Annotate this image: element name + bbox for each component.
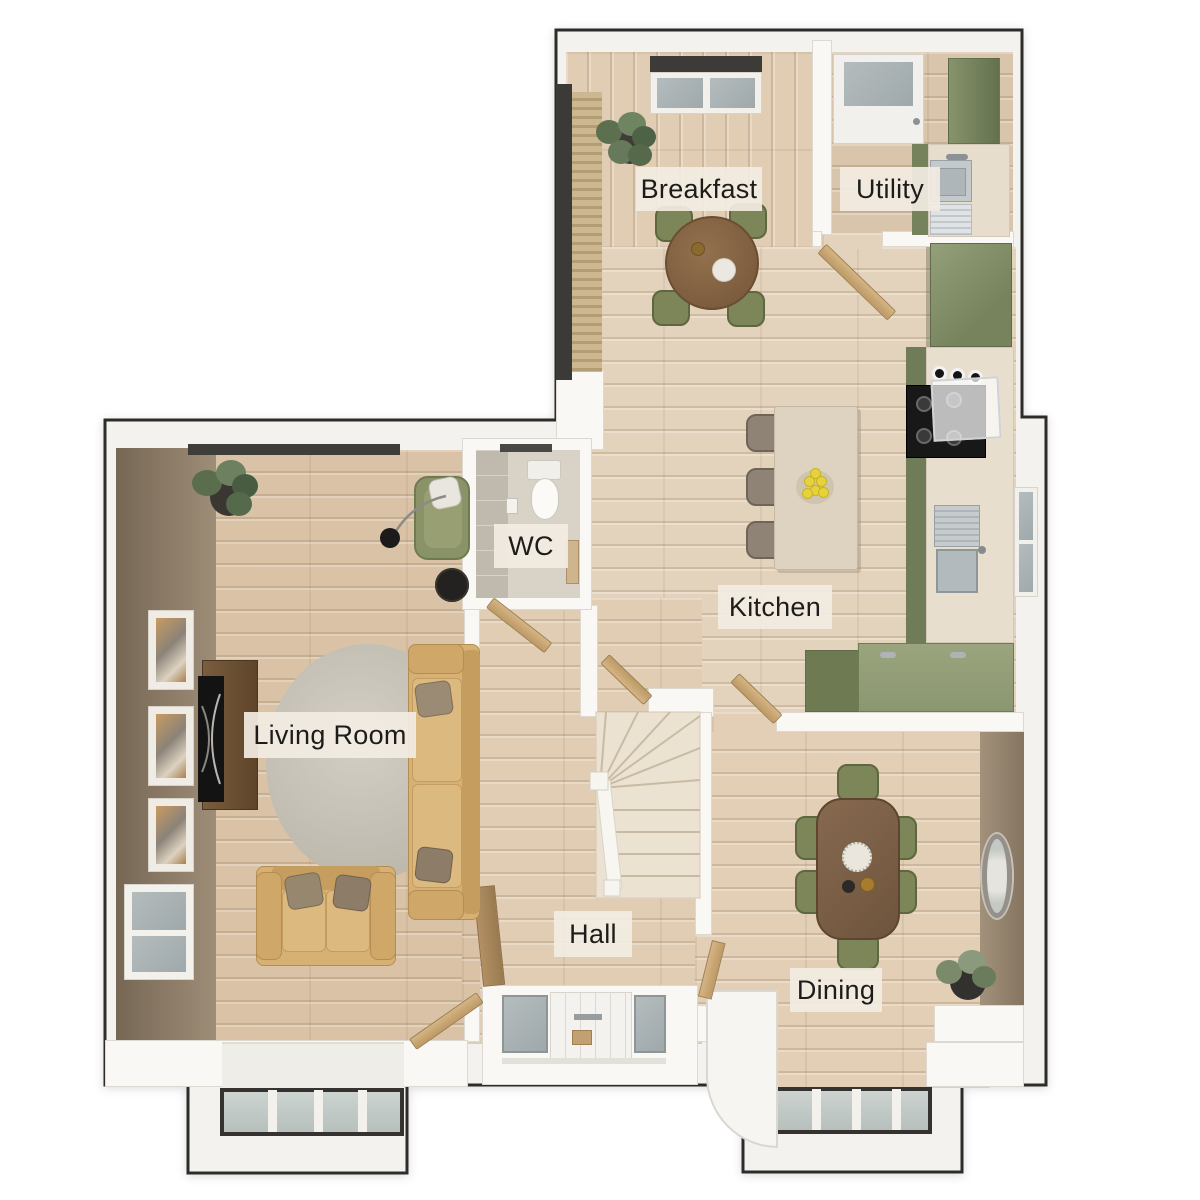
- wall-kitchen-hall: [580, 605, 598, 717]
- room-label-dining: Dining: [790, 968, 882, 1012]
- front-door: [550, 992, 632, 1062]
- floor-plan: Breakfast Utility Kitchen WC Living Room…: [0, 0, 1200, 1200]
- loveseat-pillow: [283, 871, 324, 911]
- living-plant: [192, 460, 258, 520]
- credenza-handle: [950, 652, 966, 658]
- room-label-text: WC: [508, 533, 554, 560]
- breakfast-table: [665, 216, 759, 310]
- breakfast-window-blind: [650, 56, 762, 72]
- room-label-hall: Hall: [554, 911, 632, 957]
- dining-centerpiece-plate: [842, 842, 872, 872]
- window-mullion: [314, 1090, 323, 1132]
- kitchen-sink: [936, 549, 978, 593]
- utility-wall-cabinet: [948, 58, 1000, 144]
- staircase: [588, 708, 704, 902]
- loveseat-pillow: [332, 874, 372, 913]
- dining-plant: [936, 950, 996, 1010]
- room-label-text: Breakfast: [641, 176, 758, 203]
- utility-door-handle: [913, 118, 920, 125]
- wc-window: [500, 444, 552, 452]
- front-door-threshold: [502, 1058, 666, 1064]
- cake-plate: [712, 258, 736, 282]
- living-bay-sill: [222, 1042, 404, 1088]
- lemon: [802, 488, 813, 499]
- window-mullion: [268, 1090, 277, 1132]
- stair-newel: [604, 880, 620, 896]
- sofa-armrest: [408, 644, 464, 674]
- wall-dining-corner: [934, 1005, 1024, 1042]
- window-mullion: [892, 1089, 901, 1130]
- side-table: [435, 568, 469, 602]
- kitchen-larder-cabinet: [930, 243, 1012, 347]
- kitchen-window-pane: [1019, 492, 1033, 540]
- utility-faucet: [946, 154, 968, 160]
- sofa-armrest: [408, 890, 464, 920]
- floor-lamp: [380, 486, 460, 556]
- living-bay-window: [220, 1088, 404, 1136]
- lemon: [810, 468, 821, 479]
- utility-sink-basin: [936, 168, 966, 196]
- toilet-bowl: [531, 478, 559, 520]
- room-label-breakfast: Breakfast: [636, 167, 762, 211]
- loveseat-armrest: [370, 872, 396, 960]
- dining-mirror: [982, 834, 1012, 918]
- breakfast-plant: [596, 112, 658, 174]
- stair-newel: [590, 772, 608, 790]
- table-vase: [691, 242, 705, 256]
- front-door-letterbox: [572, 1030, 592, 1045]
- threshold-utility: [822, 233, 882, 249]
- room-label-text: Utility: [856, 176, 924, 203]
- living-side-window-pane: [132, 936, 186, 972]
- wall-dining-bay-right: [926, 1042, 1024, 1087]
- room-label-text: Kitchen: [729, 594, 821, 621]
- room-label-living-room: Living Room: [244, 712, 416, 758]
- room-label-wc: WC: [494, 524, 568, 568]
- room-label-text: Living Room: [253, 722, 406, 749]
- sofa-backrest: [462, 650, 480, 914]
- toilet-paper-holder: [506, 498, 518, 514]
- sink-drainer: [934, 505, 980, 547]
- living-room-window: [188, 444, 400, 455]
- toilet-cistern: [527, 460, 561, 480]
- window-mullion: [358, 1090, 367, 1132]
- sofa-pillow: [414, 680, 454, 719]
- front-door-sidelight: [634, 995, 666, 1053]
- loveseat-armrest: [256, 872, 282, 960]
- hob-burner: [916, 428, 932, 444]
- dining-bottle: [842, 880, 855, 893]
- kitchen-faucet: [978, 546, 986, 554]
- room-label-utility: Utility: [840, 167, 940, 211]
- credenza-handle: [880, 652, 896, 658]
- window-mullion: [812, 1089, 821, 1130]
- sofa-pillow: [414, 846, 454, 884]
- wall-art-frame: [148, 706, 194, 786]
- wall-segment: [812, 231, 822, 247]
- dining-chair: [837, 764, 879, 802]
- breakfast-window-pane: [657, 78, 703, 108]
- breakfast-side-glazing-frame: [556, 84, 572, 380]
- wall-kitchen-dining: [776, 712, 1024, 732]
- wall-breakfast-utility: [812, 40, 832, 235]
- kitchen-window-pane: [1019, 544, 1033, 592]
- breakfast-window-pane: [710, 78, 755, 108]
- dining-bottle: [860, 877, 875, 892]
- room-label-kitchen: Kitchen: [718, 585, 832, 629]
- window-mullion: [852, 1089, 861, 1130]
- living-side-window-pane: [132, 892, 186, 930]
- wall-art-frame: [148, 798, 194, 872]
- wall-art-frame: [148, 610, 194, 690]
- front-door-sidelight: [502, 995, 548, 1053]
- extractor-glass: [930, 376, 1001, 441]
- front-door-handle: [574, 1014, 602, 1020]
- hob-burner: [916, 396, 932, 412]
- utility-door-glass: [844, 62, 913, 106]
- lemon: [818, 487, 829, 498]
- room-label-text: Dining: [797, 977, 875, 1004]
- room-label-text: Hall: [569, 921, 617, 948]
- tv: [198, 676, 224, 802]
